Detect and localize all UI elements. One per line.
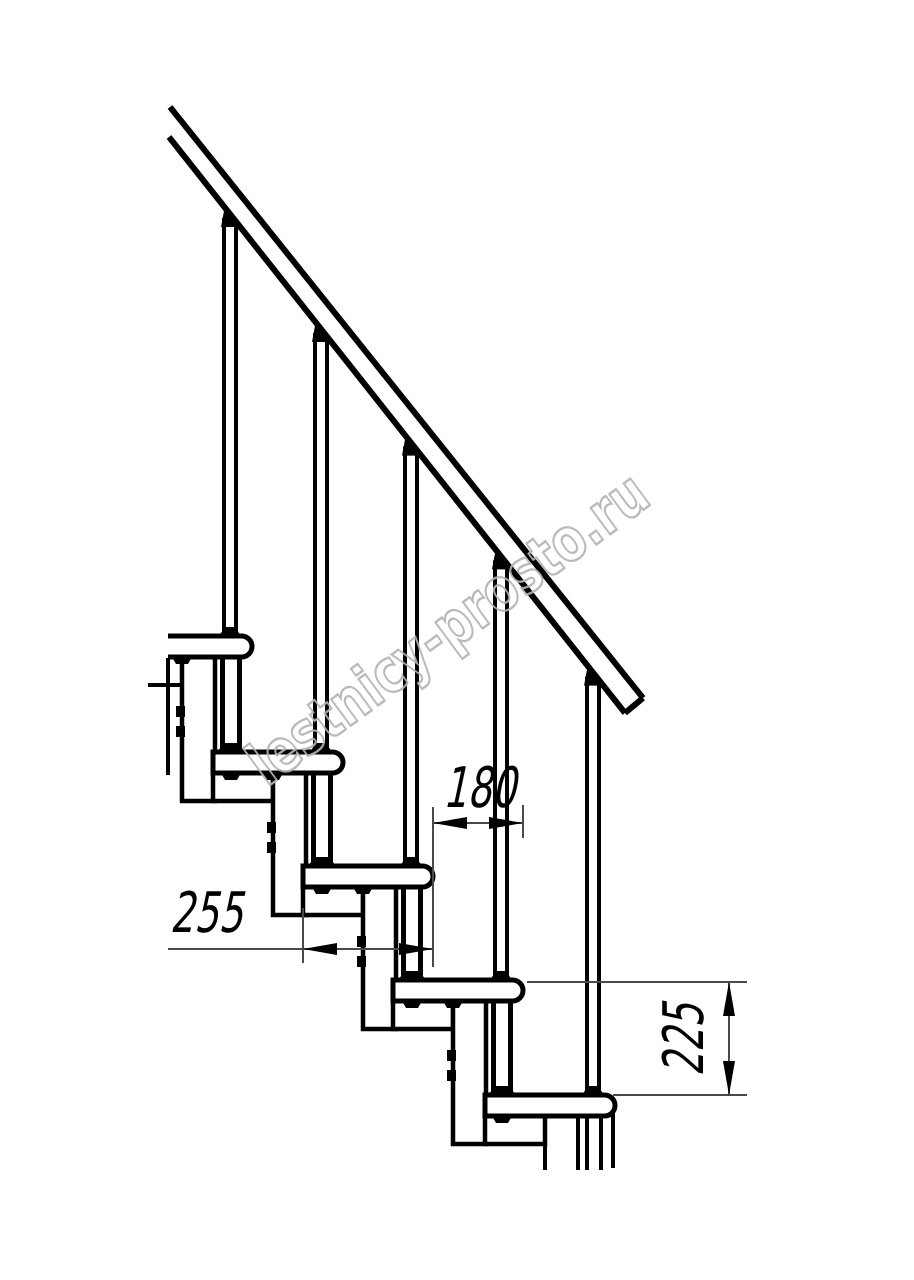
tread: [485, 1095, 615, 1116]
module-narrow-box: [453, 1001, 486, 1144]
support-post: [491, 1001, 513, 1095]
module-bolt: [357, 956, 366, 967]
stair-drawing-page: 180255225lestnicy-prosto.ru: [0, 0, 914, 1280]
support-post: [220, 657, 242, 752]
dimension-label: 225: [652, 993, 717, 1079]
dimension-180: 180: [433, 756, 526, 967]
tread: [303, 866, 433, 887]
module-narrow-box: [182, 657, 215, 801]
module: [485, 1116, 545, 1144]
module-bolt: [267, 842, 276, 853]
staircase-technical-drawing: 180255225lestnicy-prosto.ru: [0, 0, 914, 1280]
tread: [393, 980, 523, 1001]
dimension-arrow: [723, 1061, 735, 1095]
baluster: [585, 677, 601, 1095]
module-bolt: [176, 726, 185, 737]
module-wide-box: [303, 887, 363, 915]
module-bolt: [447, 1050, 456, 1061]
dimension-225: 225: [527, 982, 747, 1095]
dimension-label: 180: [440, 756, 526, 821]
module-bolt: [267, 822, 276, 833]
module: [393, 1001, 486, 1144]
module-wide-box: [393, 1001, 453, 1029]
module-wide-box: [485, 1116, 545, 1144]
module: [303, 887, 396, 1029]
dimension-arrow: [723, 982, 735, 1016]
baluster: [222, 218, 238, 636]
module: [182, 657, 215, 801]
module-bolt: [357, 936, 366, 947]
support-post: [401, 887, 423, 980]
dimension-arrow: [303, 943, 337, 955]
dimension-label: 255: [167, 881, 253, 946]
support-post: [311, 773, 333, 866]
tread: [168, 636, 252, 657]
module-bolt: [176, 706, 185, 717]
module-bolt: [447, 1070, 456, 1081]
